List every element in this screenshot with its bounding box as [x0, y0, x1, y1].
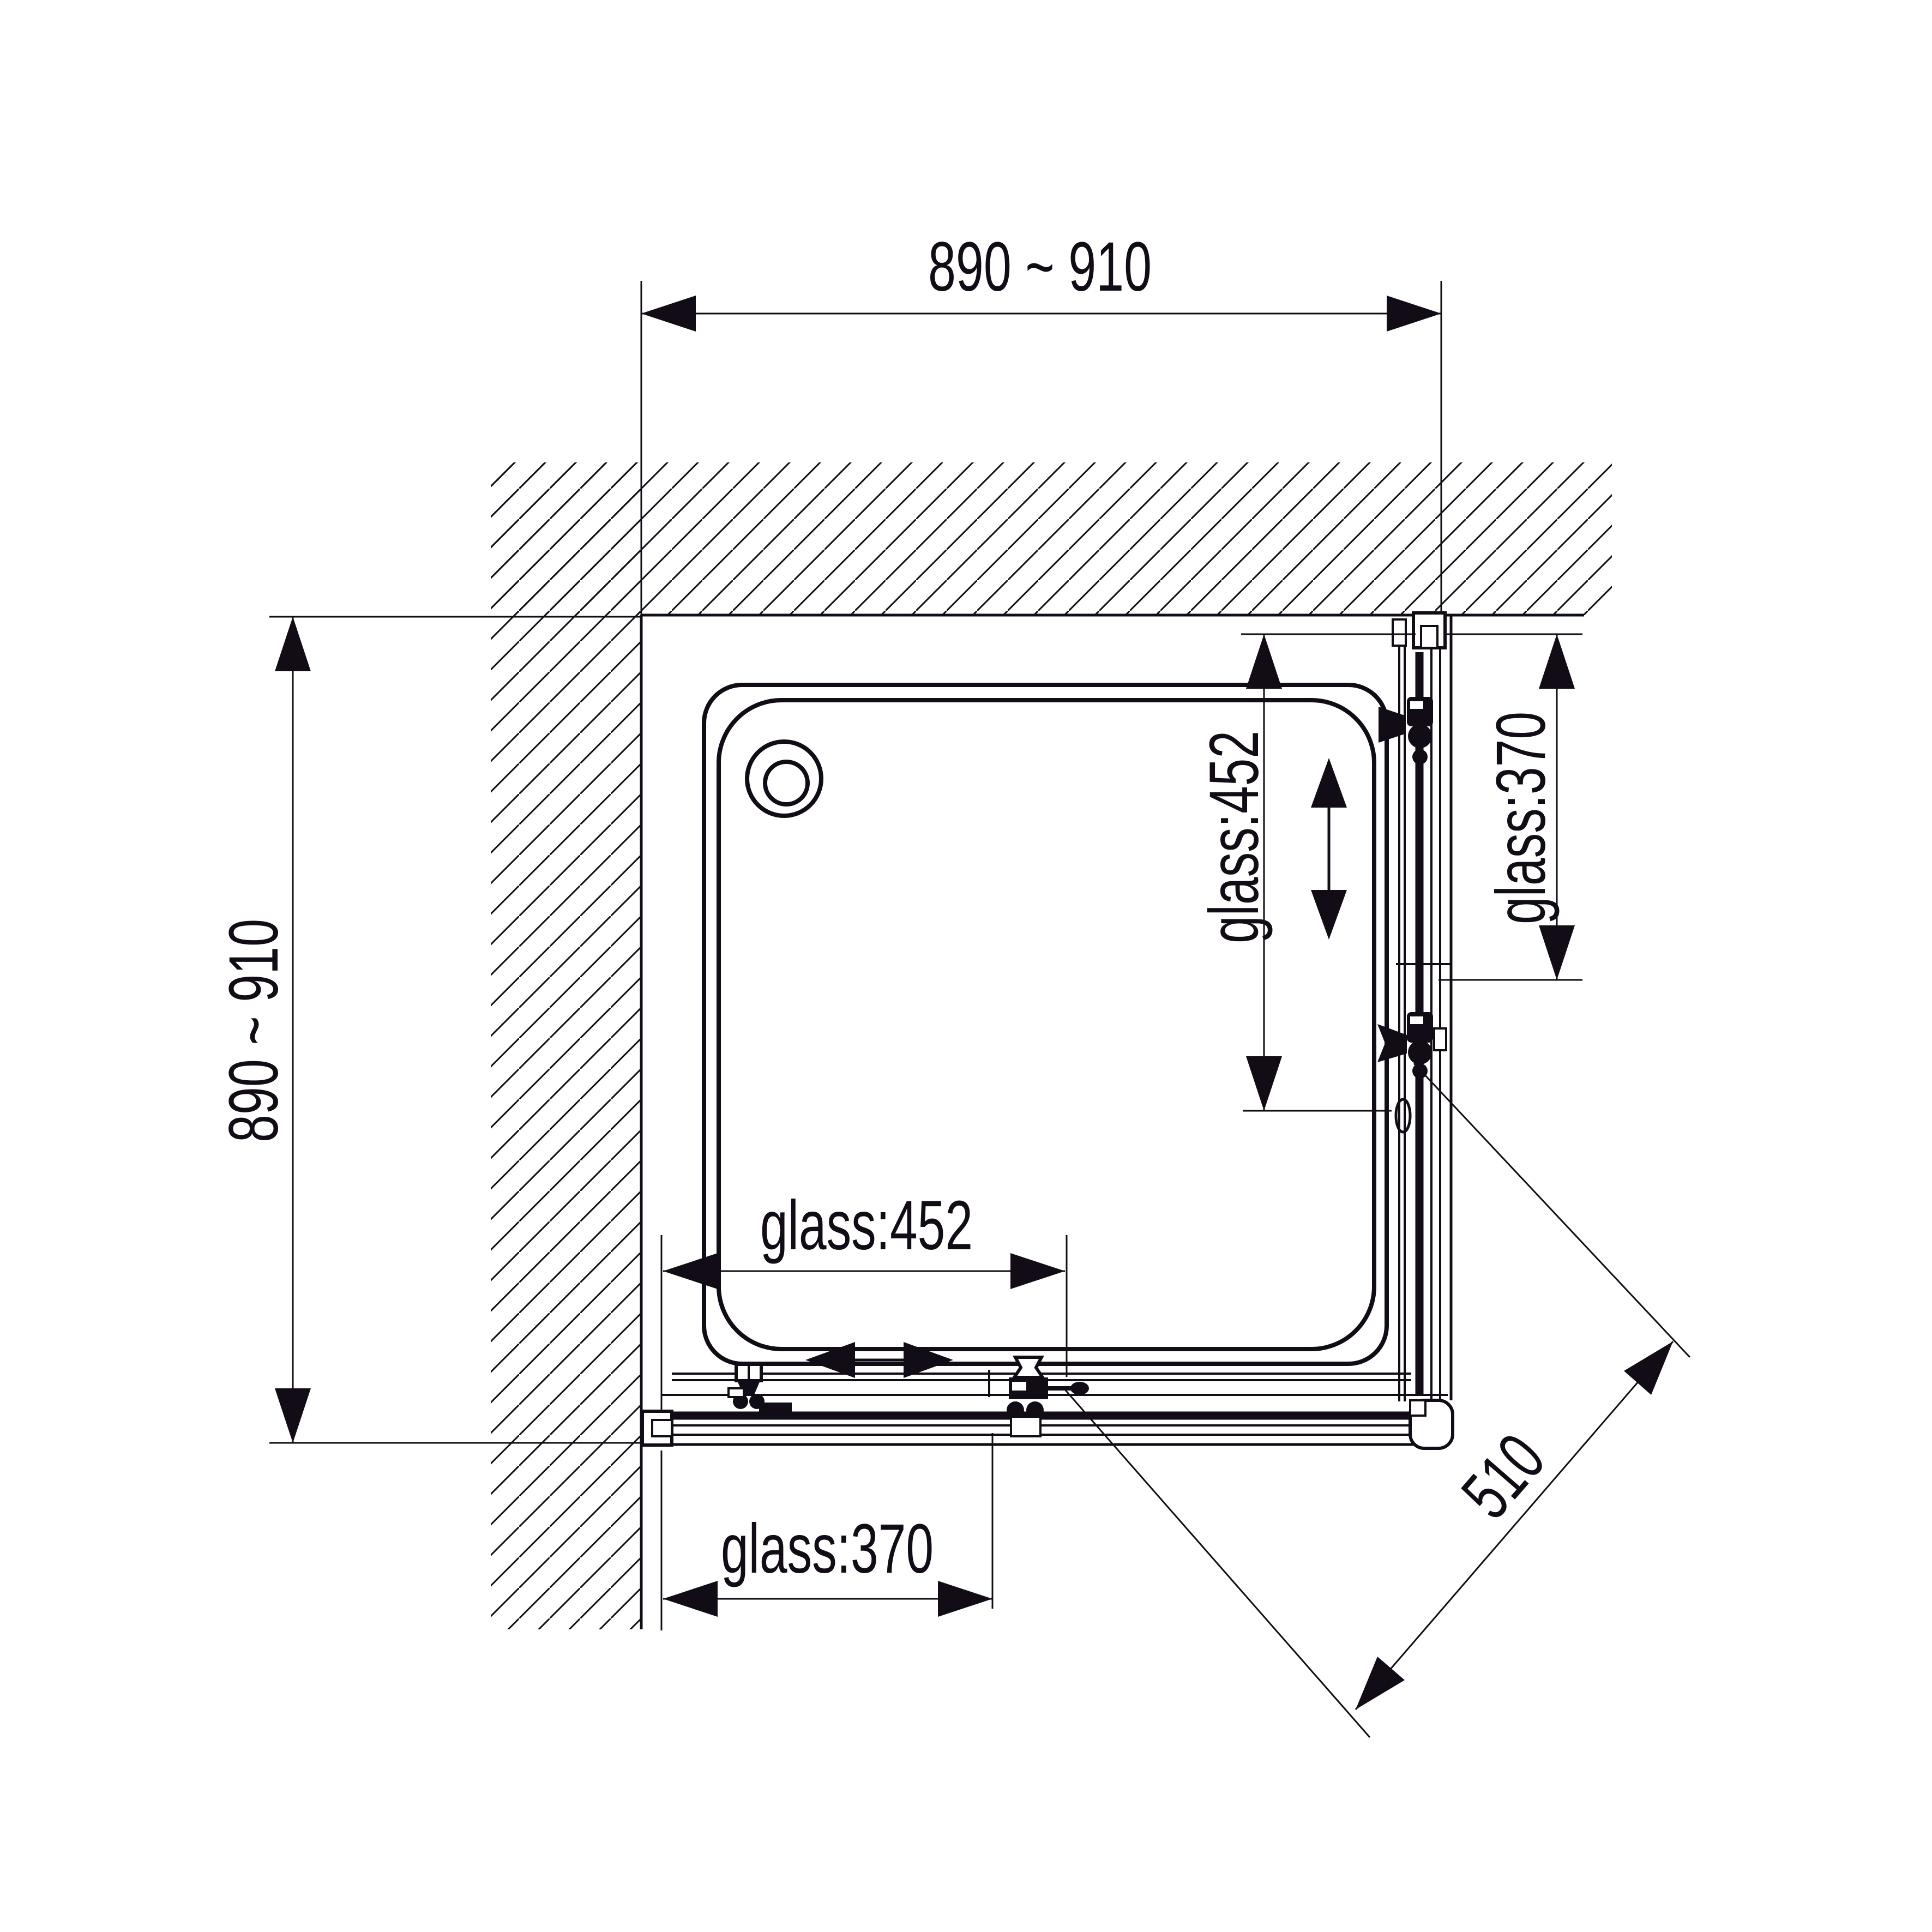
arrowhead-left-icon — [663, 1581, 718, 1617]
corner-post — [1410, 1400, 1453, 1448]
dim-label-top-width: 890 ~ 910 — [928, 228, 1152, 306]
roller-label — [1012, 1382, 1026, 1391]
arrowhead-down-icon — [1539, 925, 1575, 980]
extension-line-from-right-roller — [1414, 1063, 1690, 1357]
roller-label — [729, 1388, 744, 1397]
roller-funnel-icon — [1379, 707, 1405, 743]
wall-hatch-left — [491, 462, 641, 1629]
roller-wheel-small — [1412, 749, 1428, 765]
dim-label-diagonal-510: 510 — [1447, 1420, 1560, 1533]
arrowhead-right-icon — [1387, 296, 1441, 332]
right-top-wall-profile-inner — [1421, 626, 1437, 648]
dimension-diagonal-510: 510 — [1063, 1063, 1690, 1737]
handle-ball-icon — [1070, 1382, 1089, 1395]
arrowhead-lower-icon — [1356, 1657, 1405, 1710]
bottom-door-unit — [642, 1357, 1453, 1448]
roller-plate — [759, 1403, 792, 1417]
arrowhead-left-icon — [641, 296, 696, 332]
arrow-up-icon — [1311, 758, 1347, 808]
roller-lower-bracket — [1011, 1417, 1040, 1436]
arrowhead-up-icon — [1539, 634, 1575, 689]
wall-hatch-top — [491, 462, 1612, 615]
dim-label-right-glass-370: glass:370 — [1482, 712, 1560, 924]
roller-label — [1410, 701, 1423, 709]
dimension-line — [1356, 1341, 1673, 1710]
dimension-right-glass-370: glass:370 — [1439, 634, 1582, 980]
bottom-left-wall-profile-inner — [652, 1420, 672, 1436]
technical-drawing-canvas: 890 ~ 910 890 ~ 910 glass:452 glass:370 … — [0, 0, 1932, 1932]
roller-wheel — [1408, 1040, 1432, 1064]
arrowhead-right-icon — [938, 1581, 992, 1617]
arrowhead-right-icon — [1010, 1253, 1065, 1289]
slide-indicator-vertical — [1311, 758, 1347, 940]
dimension-bottom-glass-452: glass:452 — [661, 1187, 1067, 1411]
handle-knob-icon — [1377, 1024, 1407, 1062]
right-top-glass-clamp — [1393, 619, 1406, 646]
dim-label-left-depth: 890 ~ 910 — [215, 919, 293, 1142]
arrowhead-down-icon — [1246, 1056, 1282, 1111]
dim-label-bottom-glass-370: glass:370 — [721, 1510, 934, 1588]
arrow-down-icon — [1311, 890, 1347, 940]
roller-side-bracket — [1434, 1028, 1446, 1050]
arrowhead-upper-icon — [1624, 1341, 1673, 1395]
door-stop-icon — [1396, 1099, 1410, 1132]
handle-knob-icon — [1014, 1357, 1043, 1377]
dim-label-right-glass-452: glass:452 — [1195, 731, 1273, 943]
arrowhead-left-icon — [663, 1253, 718, 1289]
extension-line-from-bottom-roller — [1063, 1388, 1370, 1737]
corner-post-notch — [1410, 1400, 1425, 1416]
arrowhead-down-icon — [275, 1388, 311, 1443]
drain-inner-icon — [765, 762, 808, 804]
arrowhead-up-icon — [275, 617, 311, 671]
dim-label-bottom-glass-452: glass:452 — [760, 1187, 973, 1265]
roller-wheel — [1408, 724, 1432, 748]
arrowhead-up-icon — [1246, 634, 1282, 689]
bottom-left-roller — [729, 1364, 792, 1417]
shower-enclosure-plan-drawing: 890 ~ 910 890 ~ 910 glass:452 glass:370 … — [0, 0, 1932, 1932]
dimension-bottom-glass-370: glass:370 — [661, 1433, 992, 1630]
roller-label — [1410, 1016, 1423, 1024]
